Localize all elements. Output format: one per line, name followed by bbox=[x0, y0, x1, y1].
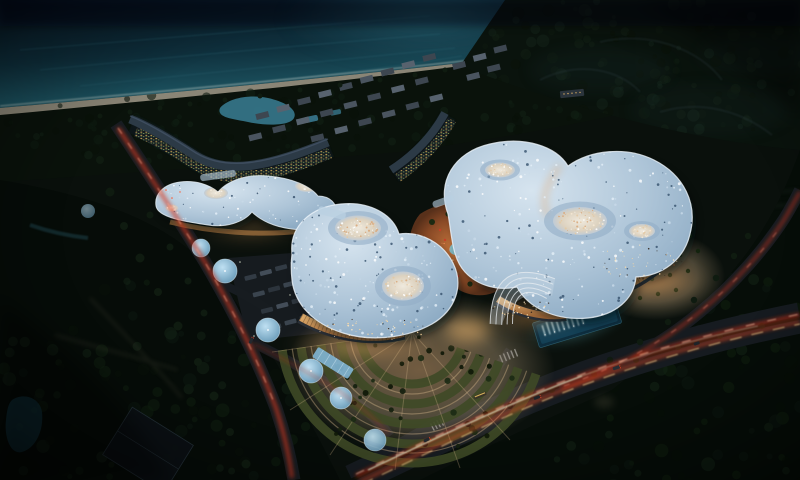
rendering-canvas bbox=[0, 0, 800, 480]
aerial-night-rendering bbox=[0, 0, 800, 480]
top-fade bbox=[0, 0, 800, 26]
